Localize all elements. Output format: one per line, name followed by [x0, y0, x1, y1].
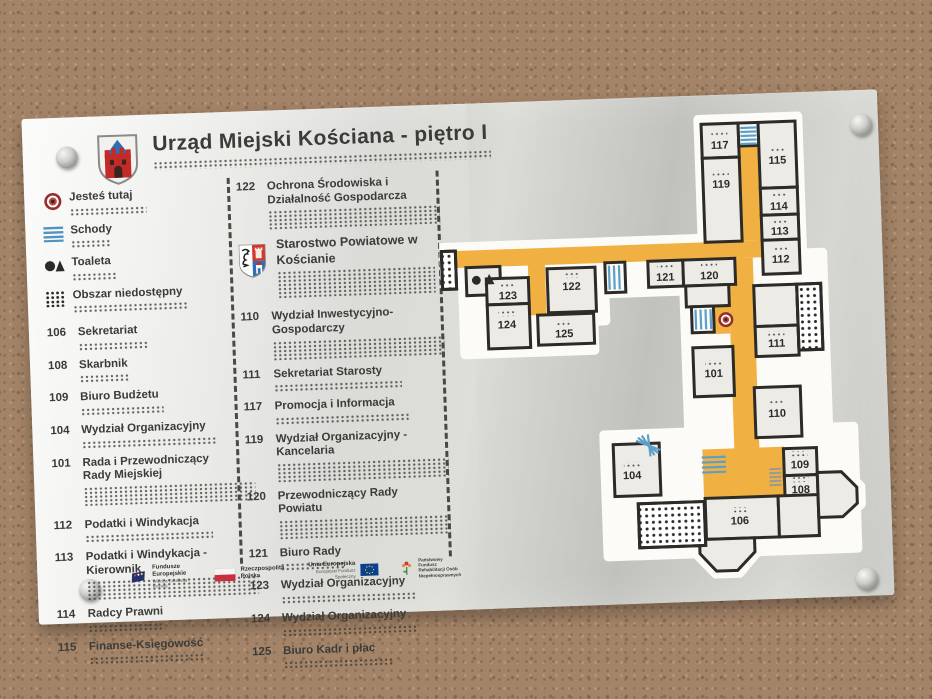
room-122-label: 122 [562, 281, 581, 294]
legend-item-inaccessible: Obszar niedostępny [45, 284, 228, 315]
inaccessible-area-icon [45, 289, 66, 308]
room-111-label: 111 [768, 338, 786, 351]
room-unlabeled-c [778, 495, 819, 537]
room-119-label: 119 [712, 178, 730, 191]
room-unlabeled-a [686, 285, 730, 307]
room-list-item: 108Skarbnik [48, 354, 231, 385]
koscian-coat-of-arms [96, 133, 140, 186]
toilet-icon [44, 257, 65, 276]
room-121-label: 121 [656, 271, 675, 284]
room-101-label: 101 [704, 368, 723, 381]
sign-plate: Urząd Miejski Kościana - piętro I Jesteś… [21, 89, 894, 625]
eu-flag-icon [360, 562, 379, 578]
floor-plan: 117 115 119 114 113 112 121 120 122 123 … [434, 96, 871, 602]
room-list-item: 104Wydział Organizacyjny [50, 419, 233, 450]
room-list-item: 117Promocja i Informacja [243, 395, 440, 426]
room-117-label: 117 [711, 139, 729, 152]
starostwo-header: Starostwo Powiatowe w Kościanie [238, 232, 436, 300]
photo-of-wall-sign: { "header": { "title": "Urząd Miejski Ko… [0, 0, 932, 699]
pfron-flower-icon [401, 559, 414, 576]
county-column: 122Ochrona Środowiska i Działalność Gosp… [236, 175, 449, 679]
logo-rzeczpospolita-polska: RzeczpospolitaPolska [215, 566, 285, 582]
room-list-item: 110Wydział Inwestycyjno-Gospodarczy [240, 305, 438, 361]
room-list-item: 112Podatki i Windykacja [53, 513, 236, 544]
starostwo-coat-of-arms [238, 238, 268, 285]
room-list-item: 111Sekretariat Starosty [242, 362, 439, 393]
screw-top-left [55, 146, 78, 169]
room-list-item: 119Wydział Organizacyjny - Kancelaria [245, 427, 443, 483]
room-list-item: 115Finanse-Księgowość [58, 636, 241, 667]
you-are-here-icon [42, 192, 63, 211]
poland-flag-icon [215, 568, 236, 582]
room-119 [702, 157, 742, 242]
city-column: Jesteś tutaj Schody Toaleta Obszar niedo… [42, 186, 241, 674]
room-list-item: 106Sekretariat [47, 321, 230, 352]
logo-fundusze-europejskie: FunduszeEuropejskieWiedza Edukacja Rozwó… [131, 563, 193, 590]
room-list-item: 124Wydział Organizacyjny [251, 607, 448, 638]
room-106-label: 106 [731, 515, 750, 528]
room-123-label: 123 [499, 290, 518, 303]
room-unlabeled-b [754, 284, 798, 326]
room-list-item: 120Przewodniczący Rady Powiatu [247, 484, 445, 540]
fundusze-europejskie-icon [131, 569, 147, 586]
room-list-item: 122Ochrona Środowiska i Działalność Gosp… [236, 175, 434, 231]
room-list-item: 125Biuro Kadr i płac [252, 639, 449, 670]
room-125-label: 125 [555, 328, 574, 341]
stairs-icon [43, 224, 64, 243]
legend-item-you-are-here: Jesteś tutaj [42, 186, 225, 217]
room-124-label: 124 [498, 319, 518, 332]
room-list-item: 101Rada i Przewodniczący Rady Miejskiej [51, 451, 235, 506]
room-115-label: 115 [768, 154, 786, 167]
header: Urząd Miejski Kościana - piętro I [96, 121, 492, 187]
room-114-label: 114 [770, 200, 789, 213]
legend-item-stairs: Schody [43, 219, 226, 250]
room-108-label: 108 [791, 484, 810, 497]
room-list-item: 109Biuro Budżetu [49, 386, 232, 417]
room-110-label: 110 [768, 408, 786, 421]
logo-pfron: Państwowy FunduszRehabilitacji OsóbNiepe… [400, 556, 461, 580]
room-112-label: 112 [772, 253, 790, 266]
room-104-label: 104 [623, 470, 643, 483]
room-113-label: 113 [771, 225, 789, 238]
starostwo-heading: Starostwo Powiatowe w Kościanie [276, 232, 435, 269]
room-120-label: 120 [700, 270, 719, 283]
room-109-label: 109 [791, 459, 810, 472]
room-list-item: 114Radcy Prawni [57, 603, 240, 634]
logo-unia-europejska: Unia EuropejskaEuropejski Fundusz Społec… [306, 560, 379, 580]
legend-item-toilet: Toaleta [44, 251, 227, 282]
